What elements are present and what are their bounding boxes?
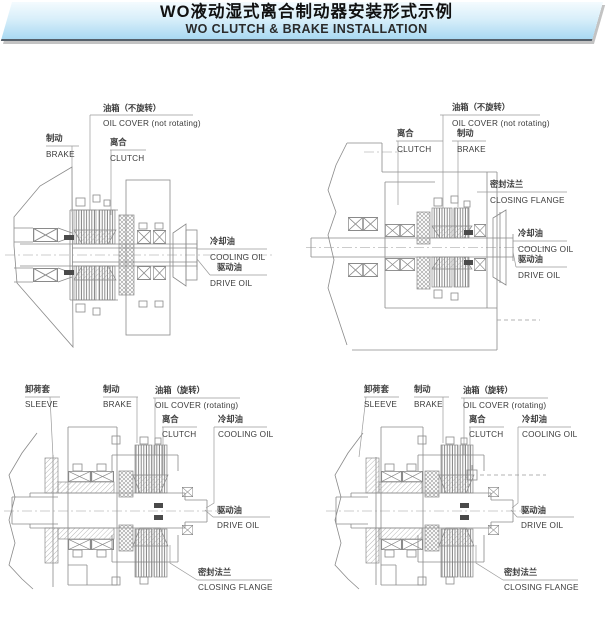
diagram-clutch-brake-oilcover-not-rotating-left: 油箱（不旋转） OIL COVER (not rotating) 制动 BRAK… [0, 60, 306, 370]
label-cooling-oil-en: COOLING OIL [518, 245, 574, 254]
label-clutch-zh: 离合 [162, 414, 179, 424]
page-title-zh: WO液动湿式离合制动器安装形式示例 [0, 3, 613, 22]
shaft [326, 493, 546, 528]
label-drive-oil-zh: 驱动油 [217, 262, 242, 272]
label-drive-oil-en: DRIVE OIL [518, 271, 561, 280]
label-sleeve-zh: 卸荷套 [25, 384, 51, 394]
housing-outline [381, 427, 423, 585]
label-oil-cover-zh: 油箱（旋转） [463, 385, 513, 395]
sleeve-hatched [45, 458, 114, 563]
label-closing-flange-zh: 密封法兰 [489, 179, 523, 189]
label-cooling-oil-en: COOLING OIL [218, 430, 274, 439]
labels: 油箱（不旋转） OIL COVER (not rotating) 制动 BRAK… [46, 103, 266, 288]
label-drive-oil-en: DRIVE OIL [217, 521, 260, 530]
label-brake-zh: 制动 [457, 128, 474, 138]
label-closing-flange-en: CLOSING FLANGE [490, 196, 565, 205]
label-oil-cover-en: OIL COVER (not rotating) [103, 119, 201, 128]
page: WO液动湿式离合制动器安装形式示例 WO CLUTCH & BRAKE INST… [0, 0, 613, 634]
clutch-brake-pack [418, 436, 474, 585]
label-sleeve-en: SLEEVE [364, 400, 397, 409]
label-cooling-oil-zh: 冷却油 [218, 414, 243, 424]
label-brake-en: BRAKE [457, 145, 486, 154]
sleeve-hatched [366, 458, 422, 563]
label-clutch-zh: 离合 [397, 128, 414, 138]
leader-lines [46, 115, 267, 275]
diagram-clutch-brake-oilcover-rotating-right: 卸荷套 SLEEVE 制动 BRAKE 油箱（旋转） OIL COVER (ro… [306, 375, 613, 634]
label-clutch-en: CLUTCH [110, 154, 144, 163]
closing-flange-wall [487, 172, 506, 308]
label-cooling-oil-en: COOLING OIL [210, 253, 266, 262]
label-sleeve-zh: 卸荷套 [364, 384, 390, 394]
label-oil-cover-zh: 油箱（不旋转） [103, 103, 161, 113]
label-cooling-oil-zh: 冷却油 [522, 414, 547, 424]
label-cooling-oil-zh: 冷却油 [518, 228, 543, 238]
label-clutch-en: CLUTCH [162, 430, 196, 439]
label-drive-oil-zh: 驱动油 [217, 505, 242, 515]
label-drive-oil-zh: 驱动油 [521, 505, 546, 515]
machine-frame-outline [14, 167, 73, 347]
label-closing-flange-zh: 密封法兰 [197, 567, 231, 577]
label-cooling-oil-zh: 冷却油 [210, 236, 235, 246]
labels: 离合 CLUTCH 油箱（不旋转） OIL COVER (not rotatin… [397, 102, 574, 280]
housing-outline [68, 427, 117, 585]
label-clutch-zh: 离合 [110, 137, 127, 147]
label-brake-zh: 制动 [414, 384, 431, 394]
label-closing-flange-en: CLOSING FLANGE [504, 583, 579, 592]
page-title-en: WO CLUTCH & BRAKE INSTALLATION [0, 22, 613, 36]
label-closing-flange-zh: 密封法兰 [503, 567, 537, 577]
diagram-clutch-brake-closing-flange: 离合 CLUTCH 油箱（不旋转） OIL COVER (not rotatin… [306, 60, 613, 370]
label-clutch-en: CLUTCH [469, 430, 503, 439]
label-oil-cover-zh: 油箱（不旋转） [452, 102, 510, 112]
label-brake-en: BRAKE [46, 150, 75, 159]
label-brake-zh: 制动 [46, 133, 63, 143]
label-drive-oil-en: DRIVE OIL [521, 521, 564, 530]
clutch-brake-pack [417, 196, 473, 300]
header-titles: WO液动湿式离合制动器安装形式示例 WO CLUTCH & BRAKE INST… [0, 3, 613, 36]
shaft [4, 493, 240, 528]
diagram-clutch-brake-oilcover-rotating-left: 卸荷套 SLEEVE 制动 BRAKE 油箱（旋转） OIL COVER (ro… [0, 375, 306, 634]
label-drive-oil-en: DRIVE OIL [210, 279, 253, 288]
label-oil-cover-en: OIL COVER (rotating) [155, 401, 238, 410]
machine-frame-outline [328, 143, 540, 350]
label-oil-cover-en: OIL COVER (rotating) [463, 401, 546, 410]
label-oil-cover-en: OIL COVER (not rotating) [452, 119, 550, 128]
label-drive-oil-zh: 驱动油 [518, 254, 543, 264]
label-brake-en: BRAKE [103, 400, 132, 409]
label-oil-cover-zh: 油箱（旋转） [155, 385, 205, 395]
label-brake-en: BRAKE [414, 400, 443, 409]
label-cooling-oil-en: COOLING OIL [522, 430, 578, 439]
label-closing-flange-en: CLOSING FLANGE [198, 583, 273, 592]
label-sleeve-en: SLEEVE [25, 400, 58, 409]
label-brake-zh: 制动 [103, 384, 120, 394]
label-clutch-zh: 离合 [469, 414, 486, 424]
clutch-brake-pack [112, 436, 168, 585]
label-clutch-en: CLUTCH [397, 145, 431, 154]
